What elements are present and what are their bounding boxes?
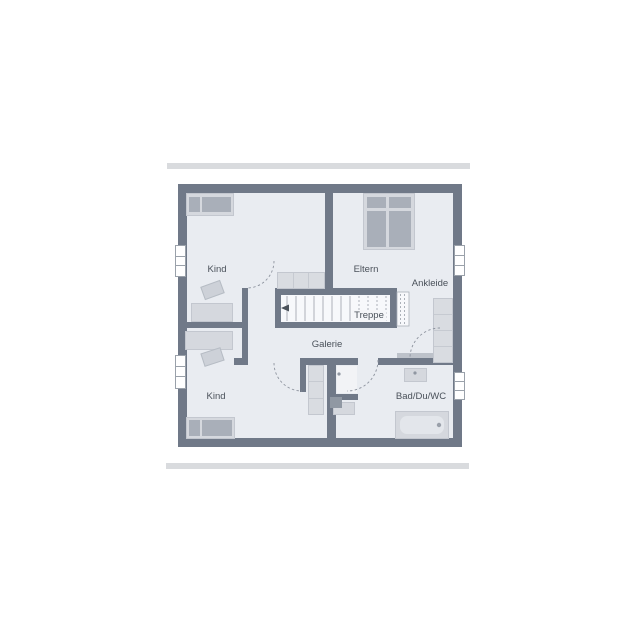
bed-kind-bottom <box>186 417 235 439</box>
room-label-galerie: Galerie <box>312 339 343 350</box>
room-label-ankleide: Ankleide <box>412 278 448 289</box>
sideboard-cell <box>294 273 309 288</box>
wall-stair-bottom <box>275 322 397 328</box>
cabinet-cell <box>309 399 323 414</box>
window-mullion <box>455 390 464 391</box>
window-mullion <box>455 381 464 382</box>
window-mullion <box>455 255 464 256</box>
bed-kind-top <box>186 193 234 216</box>
wall-kind-eltern <box>325 193 333 295</box>
wardrobe-cell <box>434 299 452 314</box>
shower <box>337 366 357 393</box>
bed-pillow <box>189 197 200 212</box>
window-mullion <box>176 256 185 257</box>
window-mullion <box>176 376 185 377</box>
wardrobe-cell <box>434 331 452 346</box>
cabinet-cell <box>309 366 323 381</box>
window-mullion <box>455 265 464 266</box>
room-label-bad: Bad/Du/WC <box>396 391 446 402</box>
bed-mattress <box>367 211 386 247</box>
dresser-kind-bottom <box>185 331 233 350</box>
bed-mattress <box>202 197 231 212</box>
wall-stair-right-cap <box>390 288 397 328</box>
window-bad <box>454 372 465 400</box>
wall-stair-top <box>275 288 397 295</box>
top-divider-bar <box>167 163 470 169</box>
wall-outer-left <box>178 184 187 447</box>
dresser-kind-top <box>191 303 233 322</box>
room-label-eltern: Eltern <box>354 264 379 275</box>
bathtub-inner <box>400 416 444 434</box>
window-mullion <box>176 366 185 367</box>
wardrobe-cell <box>434 347 452 362</box>
sideboard-kind-top <box>277 272 325 289</box>
wall-outer-top <box>178 184 462 193</box>
window-kind-top <box>175 245 186 277</box>
wall-outer-bottom <box>178 438 462 447</box>
room-label-kind-top: Kind <box>207 264 226 275</box>
sideboard-cell <box>278 273 293 288</box>
wall-galerie-south <box>303 358 358 365</box>
bed-mattress <box>389 211 411 247</box>
wardrobe-cell <box>434 315 452 330</box>
floor-plan-canvas: Kind Eltern Ankleide Treppe Galerie Kind… <box>0 0 636 636</box>
wall-stair-left-cap <box>275 288 281 328</box>
wall-outer-right <box>453 184 462 447</box>
bed-mattress <box>202 420 232 436</box>
bed-pillow <box>367 197 386 208</box>
bed-pillow <box>189 420 200 436</box>
wall-kind-galerie-foot <box>234 358 248 365</box>
wall-kind-kind-divider <box>183 322 243 328</box>
bottom-divider-bar <box>166 463 469 469</box>
bed-pillow <box>389 197 411 208</box>
window-mullion <box>176 265 185 266</box>
cabinet-cell <box>309 382 323 397</box>
wardrobe-ankleide <box>433 298 453 363</box>
room-label-kind-bottom: Kind <box>206 391 225 402</box>
washbasin <box>404 368 427 382</box>
window-eltern <box>454 245 465 276</box>
window-kind-bottom <box>175 355 186 389</box>
double-bed-eltern <box>363 193 415 250</box>
room-label-treppe: Treppe <box>352 310 386 321</box>
wc-cistern <box>330 397 342 408</box>
sideboard-cell <box>309 273 324 288</box>
bathtub <box>395 411 449 439</box>
cabinet-nook <box>308 365 324 415</box>
